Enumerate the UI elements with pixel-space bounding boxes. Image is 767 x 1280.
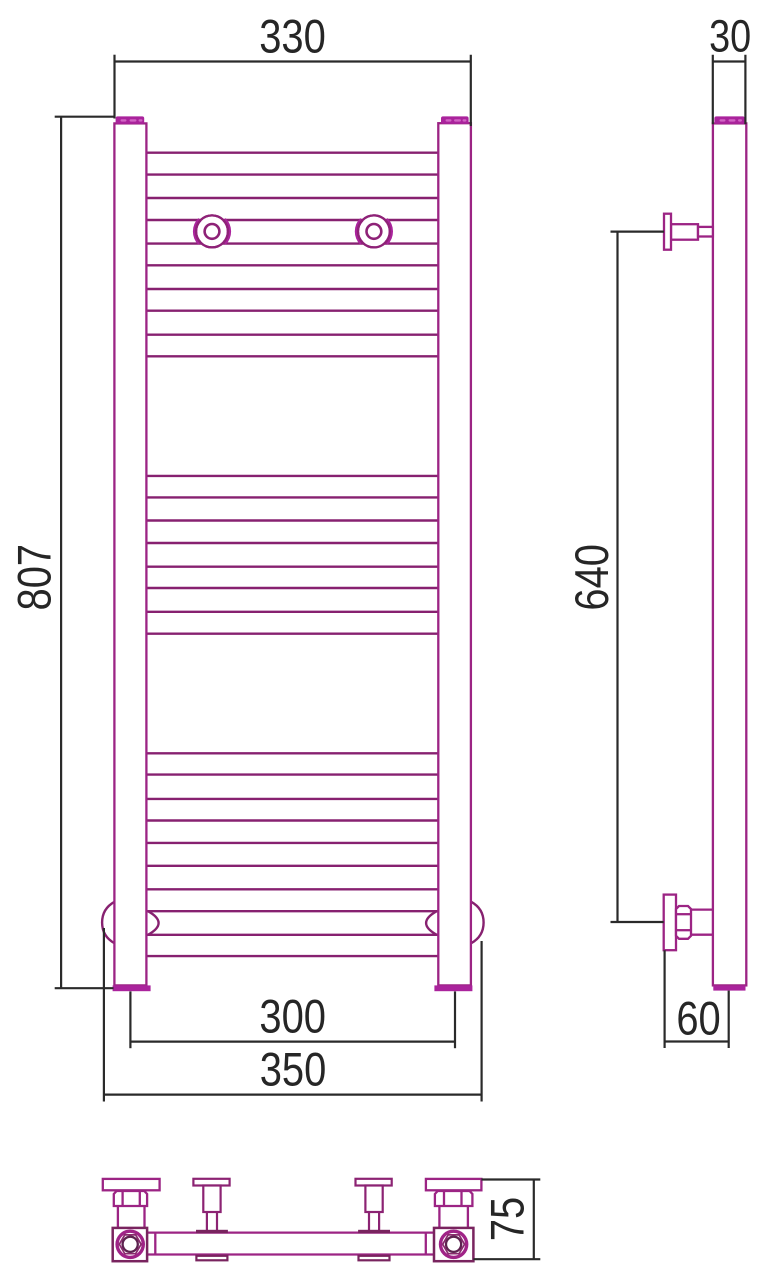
svg-text:60: 60 (676, 992, 720, 1045)
svg-text:30: 30 (709, 10, 751, 61)
svg-text:350: 350 (260, 1043, 327, 1096)
svg-text:330: 330 (259, 10, 326, 63)
svg-text:300: 300 (259, 990, 326, 1043)
svg-text:640: 640 (566, 544, 619, 611)
svg-text:75: 75 (481, 1197, 534, 1241)
svg-text:807: 807 (8, 544, 61, 611)
